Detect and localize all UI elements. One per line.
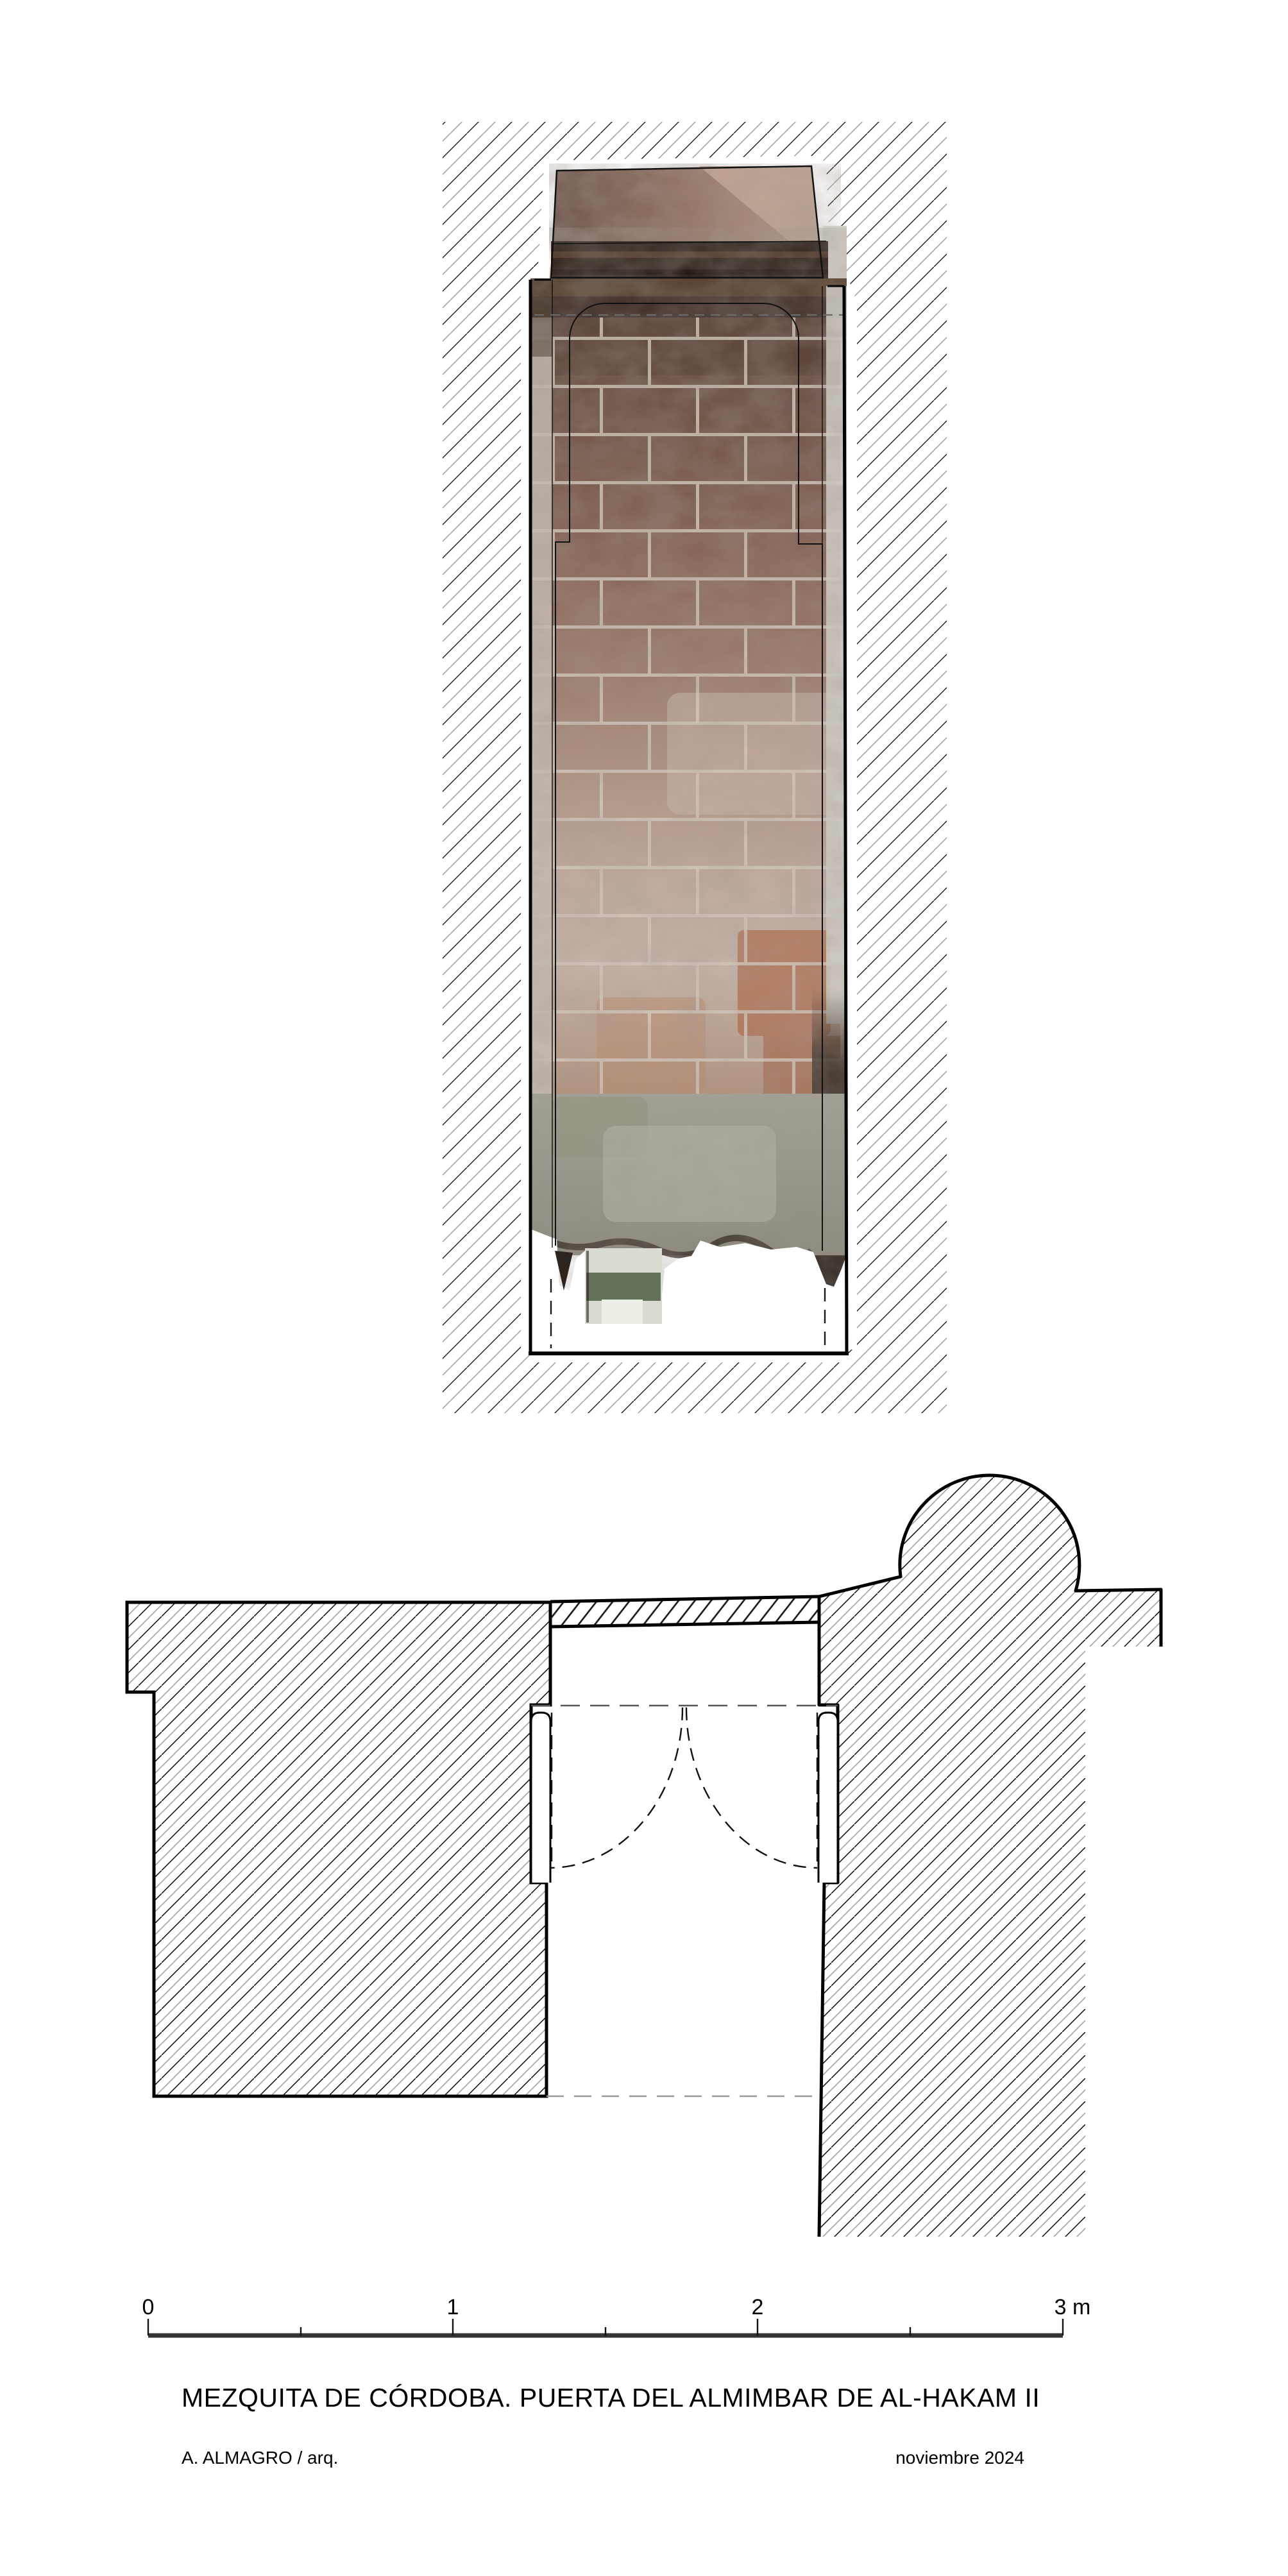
stub-green-band xyxy=(586,1273,661,1301)
elevation-view xyxy=(443,122,947,1413)
wood-shadow xyxy=(551,269,828,275)
scale-label-3m: 3 m xyxy=(1055,2295,1091,2319)
scale-label-1: 1 xyxy=(447,2295,459,2319)
drawing-sheet: 0 1 2 3 m MEZQUITA DE CÓRDOBA. PUERTA DE… xyxy=(0,0,1288,2576)
door-jamb-left xyxy=(531,1713,550,1883)
architectural-drawing: 0 1 2 3 m MEZQUITA DE CÓRDOBA. PUERTA DE… xyxy=(0,0,1288,2576)
wood-streak xyxy=(551,251,828,258)
orthophoto xyxy=(530,164,847,1362)
door-jamb-right xyxy=(818,1713,838,1883)
photo-texture-noise xyxy=(530,278,847,1292)
scale-label-2: 2 xyxy=(752,2295,764,2319)
stub-pipe xyxy=(602,1300,643,1324)
plan-left-wall xyxy=(127,1602,550,2096)
sheet-author: A. ALMAGRO / arq. xyxy=(182,2448,338,2468)
scale-label-0: 0 xyxy=(142,2295,155,2319)
sheet-title: MEZQUITA DE CÓRDOBA. PUERTA DEL ALMIMBAR… xyxy=(182,2383,1040,2412)
sheet-date: noviembre 2024 xyxy=(895,2448,1024,2468)
